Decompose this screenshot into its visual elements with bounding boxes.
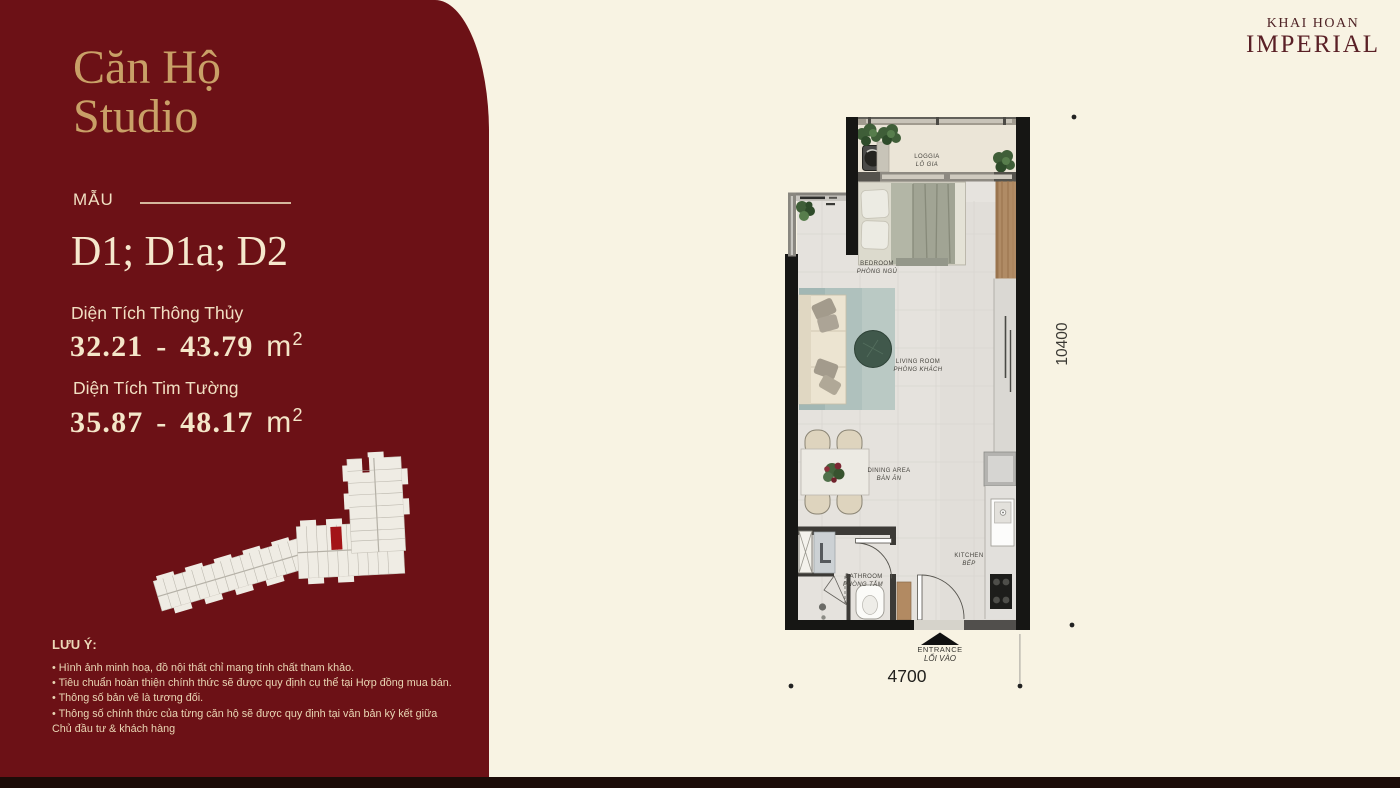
svg-text:ENTRANCE: ENTRANCE xyxy=(917,645,962,654)
svg-text:BÀN ĂN: BÀN ĂN xyxy=(877,475,902,482)
svg-text:PHÒNG NGỦ: PHÒNG NGỦ xyxy=(857,268,898,275)
svg-text:PHÒNG KHÁCH: PHÒNG KHÁCH xyxy=(893,366,942,373)
svg-text:PHÒNG TẮM: PHÒNG TẮM xyxy=(843,580,883,588)
svg-text:BATHROOM: BATHROOM xyxy=(845,574,882,580)
svg-text:KITCHEN: KITCHEN xyxy=(954,553,983,559)
svg-text:LOGGIA: LOGGIA xyxy=(914,154,939,160)
svg-text:LÔ GIA: LÔ GIA xyxy=(916,161,938,168)
svg-text:10400: 10400 xyxy=(1054,322,1071,365)
svg-text:4700: 4700 xyxy=(888,666,927,686)
svg-text:LỐI VÀO: LỐI VÀO xyxy=(924,654,956,663)
svg-text:BẾP: BẾP xyxy=(962,559,975,567)
svg-text:BEDROOM: BEDROOM xyxy=(860,261,894,267)
svg-text:DINING AREA: DINING AREA xyxy=(867,468,910,474)
svg-text:LIVING ROOM: LIVING ROOM xyxy=(896,359,940,365)
